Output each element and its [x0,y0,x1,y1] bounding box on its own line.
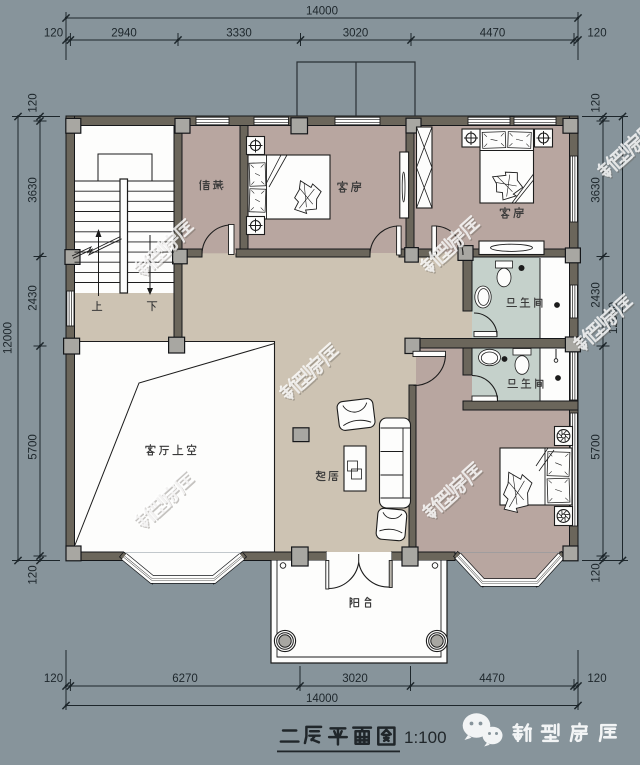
svg-text:3330: 3330 [226,28,252,40]
svg-text:6270: 6270 [172,673,198,685]
svg-text:120: 120 [587,673,606,685]
svg-text:120: 120 [591,93,603,112]
svg-text:14000: 14000 [306,6,338,18]
svg-text:14000: 14000 [306,693,338,705]
svg-text:4470: 4470 [480,28,506,40]
svg-text:120: 120 [28,565,40,584]
svg-text:12000: 12000 [3,322,15,354]
svg-text:120: 120 [44,673,63,685]
svg-text:5700: 5700 [591,434,603,460]
svg-text:1:100: 1:100 [404,728,447,747]
svg-text:120: 120 [591,563,603,582]
svg-text:3630: 3630 [28,177,40,203]
svg-text:120: 120 [587,28,606,40]
svg-text:3020: 3020 [343,28,369,40]
svg-text:4470: 4470 [479,673,505,685]
svg-text:5700: 5700 [28,434,40,460]
svg-text:3020: 3020 [342,673,368,685]
svg-text:3630: 3630 [591,177,603,203]
svg-text:120: 120 [44,28,63,40]
svg-text:2430: 2430 [591,282,603,308]
svg-text:120: 120 [28,93,40,112]
svg-text:2430: 2430 [28,285,40,311]
svg-text:2940: 2940 [111,28,137,40]
